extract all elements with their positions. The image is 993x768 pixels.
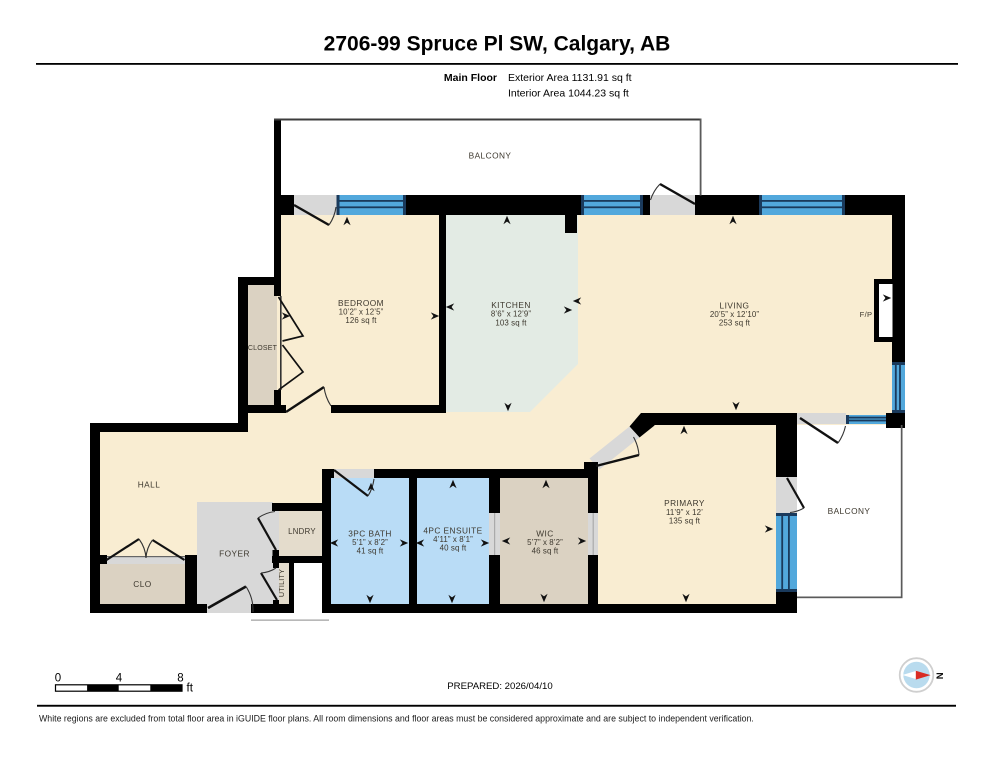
svg-text:KITCHEN: KITCHEN: [491, 300, 531, 310]
svg-text:PREPARED: 2026/04/10: PREPARED: 2026/04/10: [447, 681, 552, 692]
svg-text:46 sq ft: 46 sq ft: [532, 547, 559, 556]
svg-text:CLOSET: CLOSET: [248, 345, 278, 352]
svg-text:126 sq ft: 126 sq ft: [345, 316, 377, 325]
svg-text:LNDRY: LNDRY: [288, 527, 316, 536]
svg-text:WIC: WIC: [536, 529, 553, 539]
svg-text:2706-99 Spruce Pl SW, Calgary,: 2706-99 Spruce Pl SW, Calgary, AB: [324, 33, 671, 56]
svg-text:LIVING: LIVING: [720, 301, 750, 311]
svg-text:HALL: HALL: [138, 480, 161, 490]
svg-text:41 sq ft: 41 sq ft: [357, 547, 384, 556]
svg-text:BALCONY: BALCONY: [469, 151, 512, 161]
svg-text:PRIMARY: PRIMARY: [664, 498, 705, 508]
svg-text:8: 8: [177, 673, 183, 685]
svg-text:Main Floor: Main Floor: [444, 72, 497, 84]
svg-text:3PC BATH: 3PC BATH: [348, 529, 392, 539]
svg-text:BEDROOM: BEDROOM: [338, 298, 384, 308]
svg-text:253 sq ft: 253 sq ft: [719, 318, 751, 327]
svg-text:F/P: F/P: [860, 310, 873, 319]
svg-text:White regions are excluded fro: White regions are excluded from total fl…: [39, 714, 754, 724]
svg-text:BALCONY: BALCONY: [828, 506, 871, 516]
svg-text:N: N: [933, 672, 944, 679]
svg-text:135 sq ft: 135 sq ft: [669, 517, 701, 526]
svg-text:40 sq ft: 40 sq ft: [440, 544, 467, 553]
svg-text:Interior Area 1044.23 sq ft: Interior Area 1044.23 sq ft: [508, 88, 629, 100]
svg-text:8’6” x 12’9”: 8’6” x 12’9”: [491, 310, 532, 319]
svg-text:FOYER: FOYER: [219, 549, 250, 559]
svg-text:UTILITY: UTILITY: [277, 569, 286, 597]
svg-text:ft: ft: [187, 683, 194, 695]
svg-text:Exterior Area 1131.91 sq ft: Exterior Area 1131.91 sq ft: [508, 72, 632, 84]
svg-text:103 sq ft: 103 sq ft: [495, 318, 527, 327]
svg-text:CLO: CLO: [133, 579, 152, 589]
svg-text:4PC ENSUITE: 4PC ENSUITE: [423, 526, 482, 536]
svg-text:4: 4: [116, 673, 123, 685]
svg-text:0: 0: [55, 673, 61, 685]
